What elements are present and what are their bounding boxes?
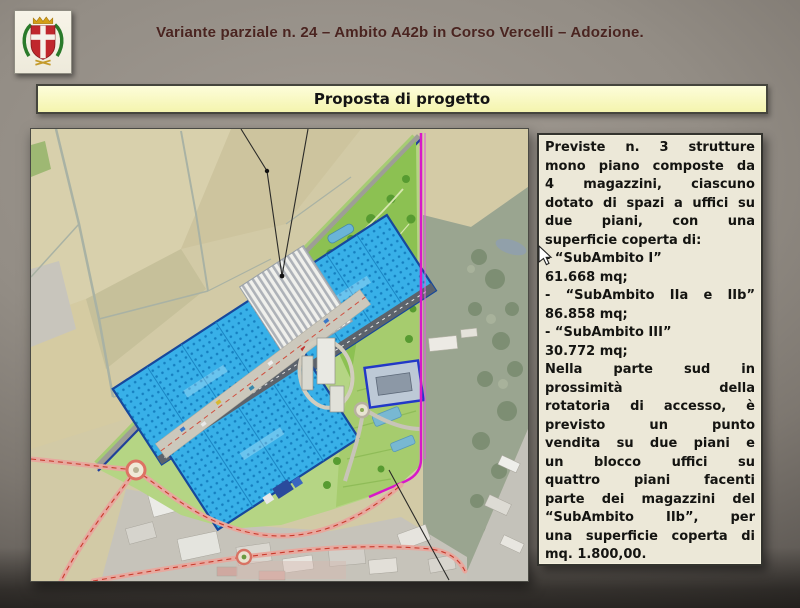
project-description-box: Previste n. 3 strutturemono piano compos…: [537, 133, 763, 566]
textbox-line: “SubAmbito IIb”, per: [545, 509, 755, 528]
textbox-line: rotatoria di accesso, è: [545, 398, 755, 417]
textbox-line: 30.772 mq;: [545, 343, 755, 362]
slide-title: Variante parziale n. 24 – Ambito A42b in…: [0, 24, 800, 41]
textbox-line: un blocco uffici su: [545, 454, 755, 473]
textbox-line: due piani, con una: [545, 213, 755, 232]
textbox-line: Previste n. 3 strutture: [545, 139, 755, 158]
textbox-line: 61.668 mq;: [545, 269, 755, 288]
textbox-line: - “SubAmbito IIa e IIb”: [545, 287, 755, 306]
textbox-line: 4 magazzini, ciascuno: [545, 176, 755, 195]
textbox-line: previsto un punto: [545, 417, 755, 436]
textbox-line: vendita su due piani e: [545, 435, 755, 454]
textbox-line: superficie coperta di:: [545, 232, 755, 251]
textbox-line: - “SubAmbito III”: [545, 324, 755, 343]
textbox-line: quattro piani facenti: [545, 472, 755, 491]
textbox-line: prossimità della: [545, 380, 755, 399]
textbox-line: 86.858 mq;: [545, 306, 755, 325]
presentation-slide: Variante parziale n. 24 – Ambito A42b in…: [0, 0, 800, 608]
textbox-line: una superficie coperta di: [545, 528, 755, 547]
textbox-line: - “SubAmbito I”: [545, 250, 755, 269]
site-plan-drawing: [31, 129, 528, 581]
textbox-line: Nella parte sud in: [545, 361, 755, 380]
textbox-line: mq. 1.800,00.: [545, 546, 755, 565]
site-plan-map: [30, 128, 529, 582]
section-banner: Proposta di progetto: [36, 84, 768, 114]
textbox-line: mono piano composte da: [545, 158, 755, 177]
logo-tile: [14, 10, 72, 74]
textbox-lines: Previste n. 3 strutturemono piano compos…: [545, 139, 755, 565]
textbox-line: parte dei magazzini del: [545, 491, 755, 510]
textbox-line: dotato di spazi a uffici su: [545, 195, 755, 214]
banner-title: Proposta di progetto: [314, 90, 490, 108]
